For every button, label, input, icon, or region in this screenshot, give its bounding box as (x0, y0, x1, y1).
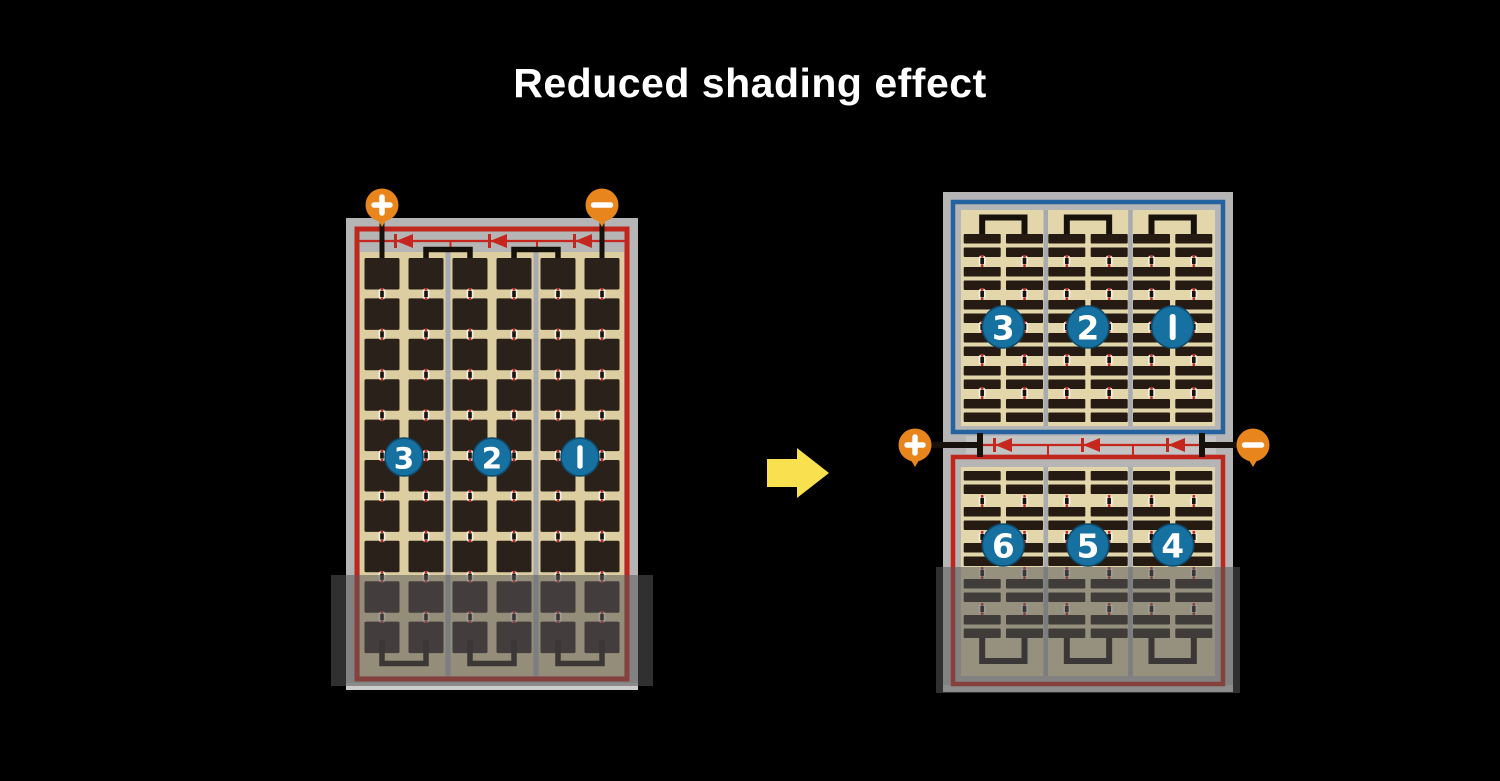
right-panel-positive-terminal (899, 429, 932, 468)
solar-cell (497, 298, 532, 330)
half-cut-cell (1006, 507, 1043, 517)
cell-connector-dot (1021, 255, 1028, 267)
cell-connector-dot (1148, 387, 1155, 399)
cell-connector-dot (423, 328, 430, 340)
cell-connector-dot (423, 490, 430, 502)
half-cut-cell (1091, 267, 1128, 277)
cell-connector-dot (467, 328, 474, 340)
cell-connector-dot (1021, 354, 1028, 366)
half-cut-cell (1006, 267, 1043, 277)
solar-cell (585, 339, 620, 371)
cell-connector-dot (555, 288, 562, 300)
half-cut-cell (1091, 399, 1128, 409)
solar-cell (497, 379, 532, 411)
cell-connector-dot (979, 255, 986, 267)
half-cut-cell (964, 399, 1001, 409)
cell-connector-dot (511, 328, 518, 340)
half-cut-cell (1006, 234, 1043, 244)
cell-connector-dot (555, 328, 562, 340)
solar-cell (409, 298, 444, 330)
solar-cell (453, 500, 488, 532)
half-cut-cell (1048, 471, 1085, 481)
cell-connector-dot (1106, 495, 1113, 507)
solar-cell (497, 541, 532, 573)
half-cut-cell (1175, 507, 1212, 517)
cell-connector-dot (599, 490, 606, 502)
half-cut-cell (1091, 413, 1128, 423)
solar-cell (585, 500, 620, 532)
half-cut-cell (1133, 399, 1170, 409)
string-number-text: 3 (394, 441, 414, 475)
half-cut-cell (1091, 485, 1128, 495)
string-number-glyph-1 (1170, 314, 1176, 340)
half-cut-cell (1133, 485, 1170, 495)
cell-connector-dot (1106, 387, 1113, 399)
half-cut-cell (1006, 471, 1043, 481)
half-cut-cell (1175, 413, 1212, 423)
half-cut-cell (1091, 507, 1128, 517)
string-number-badge: 2 (1067, 306, 1109, 348)
string-number-text: 4 (1161, 528, 1184, 566)
half-cut-cell (964, 413, 1001, 423)
half-cut-cell (1048, 413, 1085, 423)
solar-cell (541, 379, 576, 411)
half-cut-cell (1175, 471, 1212, 481)
solar-cell (541, 339, 576, 371)
solar-cell (409, 500, 444, 532)
half-cut-cell (1048, 366, 1085, 376)
half-cut-cell (1133, 507, 1170, 517)
cell-connector-dot (555, 490, 562, 502)
cell-connector-dot (379, 369, 386, 381)
solar-cell (409, 339, 444, 371)
half-cut-cell (1048, 234, 1085, 244)
cell-connector-dot (1106, 255, 1113, 267)
cell-connector-dot (1063, 288, 1070, 300)
half-cut-cell (1175, 234, 1212, 244)
solar-cell (365, 339, 400, 371)
cell-connector-dot (555, 530, 562, 542)
cell-connector-dot (599, 369, 606, 381)
solar-cell (365, 258, 400, 290)
half-cut-cell (1133, 267, 1170, 277)
half-cut-cell (1175, 366, 1212, 376)
solar-cell (497, 258, 532, 290)
cell-connector-dot (467, 409, 474, 421)
solar-cell (585, 541, 620, 573)
solar-cell (453, 541, 488, 573)
cell-connector-dot (1148, 288, 1155, 300)
shade-band-left (331, 575, 653, 686)
solar-cell (585, 258, 620, 290)
half-cut-cell (1048, 485, 1085, 495)
cell-connector-dot (599, 409, 606, 421)
half-cut-cell (1048, 267, 1085, 277)
cell-connector-dot (979, 495, 986, 507)
cell-connector-dot (599, 328, 606, 340)
string-number-badge: 2 (473, 438, 511, 476)
cell-connector-dot (555, 369, 562, 381)
string-number-text: 2 (1077, 310, 1100, 348)
solar-cell (409, 258, 444, 290)
half-cut-cell (1006, 413, 1043, 423)
half-cut-cell (1006, 485, 1043, 495)
cell-connector-dot (511, 530, 518, 542)
string-number-text: 3 (992, 310, 1015, 348)
solar-cell (365, 500, 400, 532)
string-number-badge: 4 (1152, 524, 1194, 566)
half-cut-cell (1091, 471, 1128, 481)
cell-connector-dot (467, 490, 474, 502)
solar-panel-shading-diagram: 3232654 (0, 0, 1500, 781)
half-cut-cell (1006, 366, 1043, 376)
half-cut-cell (1048, 507, 1085, 517)
cell-connector-dot (379, 490, 386, 502)
diagram-canvas: 3232654 Reduced shading effect (0, 0, 1500, 781)
cell-connector-dot (1063, 255, 1070, 267)
solar-cell (453, 258, 488, 290)
half-cut-cell (964, 507, 1001, 517)
string-number-badge (561, 438, 599, 476)
cell-connector-dot (1148, 255, 1155, 267)
cell-connector-dot (423, 409, 430, 421)
cell-connector-dot (1190, 255, 1197, 267)
cell-connector-dot (467, 288, 474, 300)
half-cut-cell (1133, 366, 1170, 376)
cell-connector-dot (979, 387, 986, 399)
half-cut-cell (1175, 485, 1212, 495)
solar-cell (365, 541, 400, 573)
shade-band-right (936, 567, 1240, 693)
cell-connector-dot (1190, 495, 1197, 507)
string-number-text: 5 (1077, 528, 1100, 566)
string-number-badge (1152, 306, 1194, 348)
cell-connector-dot (511, 409, 518, 421)
cell-connector-dot (555, 409, 562, 421)
solar-cell (497, 339, 532, 371)
cell-connector-dot (467, 530, 474, 542)
solar-cell (365, 298, 400, 330)
cell-connector-dot (511, 369, 518, 381)
half-cut-cell (1048, 399, 1085, 409)
cell-connector-dot (1190, 387, 1197, 399)
string-number-badge: 5 (1067, 524, 1109, 566)
solar-cell (409, 379, 444, 411)
half-cut-cell (964, 267, 1001, 277)
cell-connector-dot (423, 369, 430, 381)
cell-connector-dot (1063, 354, 1070, 366)
cell-connector-dot (379, 288, 386, 300)
solar-cell (365, 379, 400, 411)
cell-connector-dot (1021, 387, 1028, 399)
cell-connector-dot (1063, 387, 1070, 399)
solar-cell (585, 379, 620, 411)
half-cut-cell (1006, 399, 1043, 409)
cell-connector-dot (1148, 495, 1155, 507)
half-cut-cell (1091, 366, 1128, 376)
transition-arrow-icon (767, 448, 829, 498)
cell-connector-dot (379, 409, 386, 421)
right-panel-top-half: 32 (943, 192, 1233, 442)
cell-connector-dot (379, 328, 386, 340)
left-panel-full-cell-module: 32 (331, 189, 653, 691)
solar-cell (409, 541, 444, 573)
cell-connector-dot (1063, 495, 1070, 507)
cell-connector-dot (979, 354, 986, 366)
solar-cell (541, 500, 576, 532)
solar-cell (541, 298, 576, 330)
cell-connector-dot (599, 530, 606, 542)
solar-cell (585, 298, 620, 330)
solar-cell (453, 379, 488, 411)
cell-connector-dot (1106, 288, 1113, 300)
solar-cell (497, 500, 532, 532)
cell-connector-dot (1106, 354, 1113, 366)
half-cut-cell (964, 471, 1001, 481)
right-panel-negative-terminal (1237, 429, 1270, 468)
solar-cell (453, 339, 488, 371)
cell-connector-dot (467, 369, 474, 381)
solar-cell (541, 541, 576, 573)
half-cut-cell (1091, 234, 1128, 244)
diagram-title: Reduced shading effect (0, 60, 1500, 107)
cell-connector-dot (1021, 288, 1028, 300)
cell-connector-dot (1190, 354, 1197, 366)
cell-connector-dot (1021, 495, 1028, 507)
cell-connector-dot (1148, 354, 1155, 366)
string-number-badge: 3 (385, 438, 423, 476)
half-cut-cell (1133, 234, 1170, 244)
cell-connector-dot (423, 288, 430, 300)
string-number-glyph-1 (577, 445, 582, 469)
half-cut-cell (964, 234, 1001, 244)
half-cut-cell (1175, 267, 1212, 277)
string-number-text: 6 (992, 528, 1015, 566)
half-cut-cell (964, 366, 1001, 376)
half-cut-cell (1133, 413, 1170, 423)
half-cut-cell (964, 485, 1001, 495)
cell-connector-dot (423, 530, 430, 542)
half-cut-cell (1175, 399, 1212, 409)
cell-connector-dot (511, 288, 518, 300)
string-number-badge: 3 (982, 306, 1024, 348)
cell-connector-dot (379, 530, 386, 542)
solar-cell (453, 298, 488, 330)
cell-connector-dot (511, 490, 518, 502)
string-number-text: 2 (482, 441, 502, 475)
right-panel-bypass-diode-strip (928, 433, 1240, 457)
cell-connector-dot (979, 288, 986, 300)
cell-connector-dot (599, 288, 606, 300)
half-cut-cell (1133, 471, 1170, 481)
string-number-badge: 6 (982, 524, 1024, 566)
cell-connector-dot (1190, 288, 1197, 300)
solar-cell (541, 258, 576, 290)
